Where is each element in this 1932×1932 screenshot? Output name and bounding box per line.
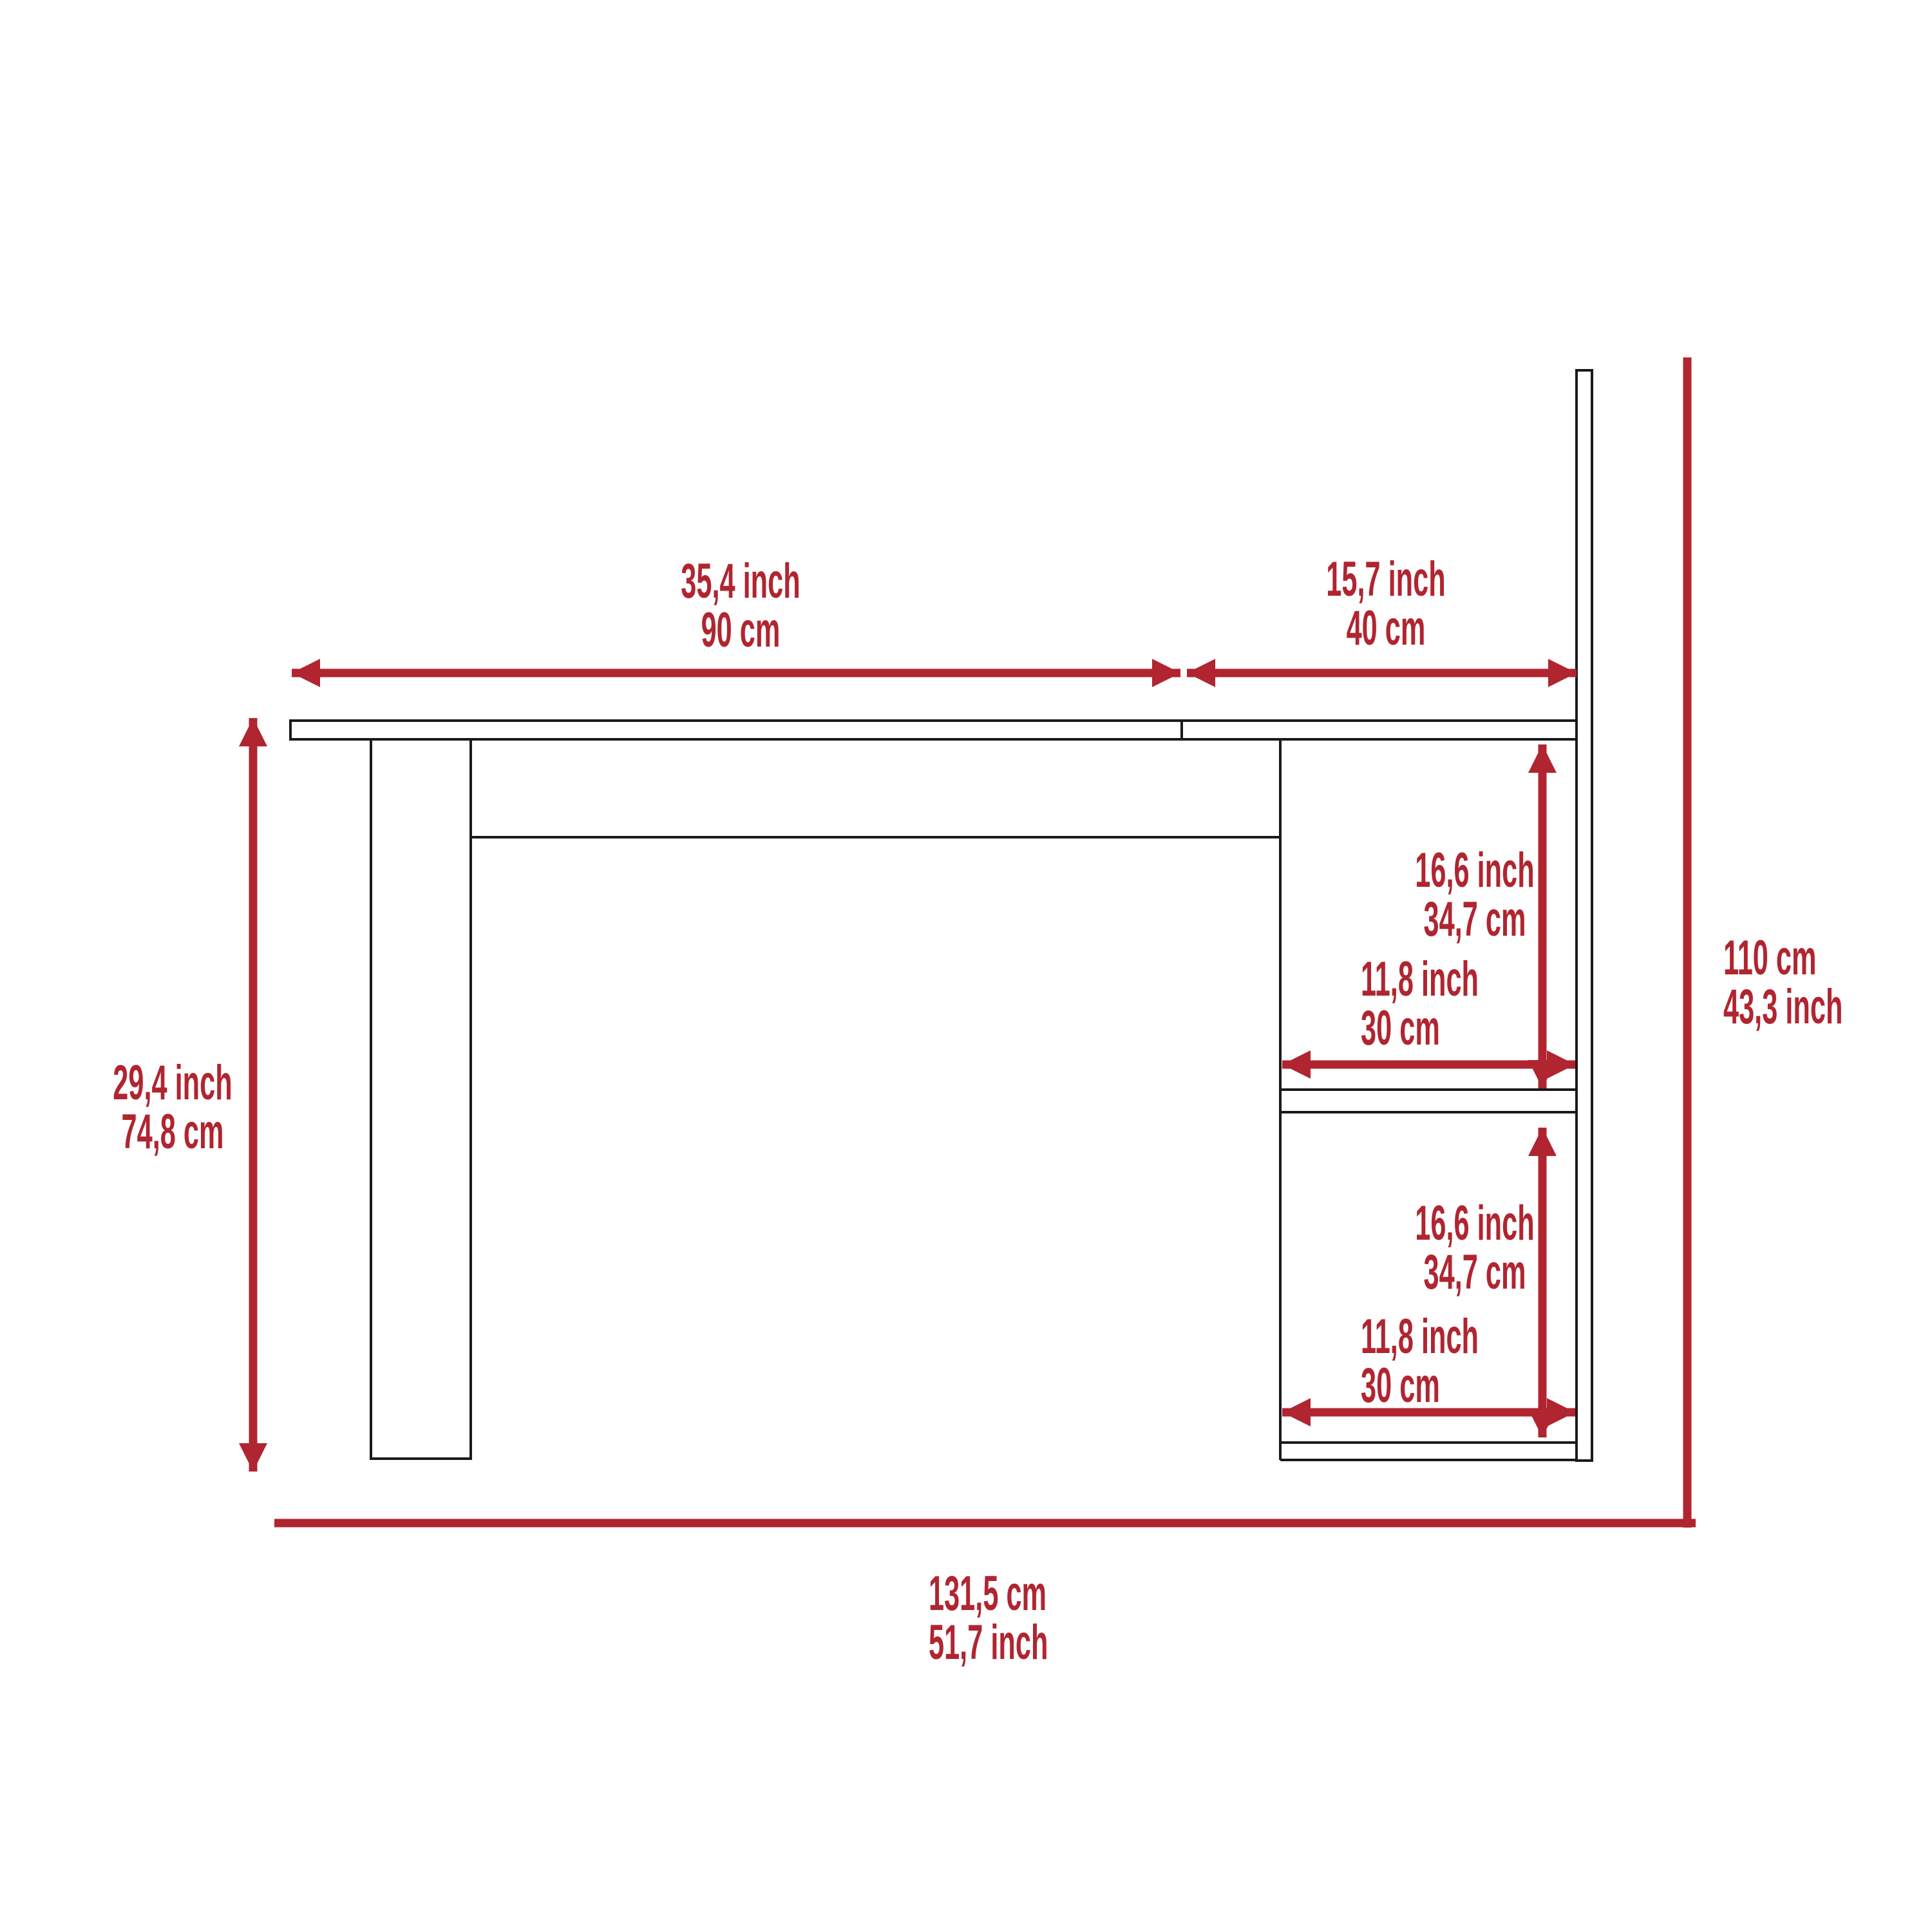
dim-label-total-height: 110 cm 43,3 inch <box>1723 934 1842 1032</box>
dim-label-lower-shelf-width: 11,8 inch 30 cm <box>1361 1312 1479 1410</box>
diagram-canvas: 35,4 inch 90 cm 15,7 inch 40 cm 29,4 inc… <box>0 0 1932 1932</box>
dim-label-total-width: 131,5 cm 51,7 inch <box>929 1569 1048 1667</box>
dim-label-line-inch: 11,8 inch <box>1361 1312 1479 1361</box>
dim-label-line-inch: 29,4 inch <box>62 1059 283 1108</box>
dim-label-line-inch: 11,8 inch <box>1361 955 1479 1004</box>
dim-label-line-inch: 35,4 inch <box>630 557 851 606</box>
desktop-surface <box>290 721 1577 739</box>
dim-label-line-inch: 43,3 inch <box>1723 983 1842 1032</box>
dim-label-desk-height: 29,4 inch 74,8 cm <box>62 1059 283 1157</box>
dim-label-line-cm: 30 cm <box>1361 1361 1479 1410</box>
dim-label-line-inch: 16,6 inch <box>1365 1199 1585 1248</box>
dim-label-line-cm: 131,5 cm <box>929 1569 1048 1618</box>
shelf-divider <box>1280 1090 1577 1112</box>
dim-label-line-cm: 110 cm <box>1723 934 1842 983</box>
dim-label-upper-shelf-width: 11,8 inch 30 cm <box>1361 955 1479 1053</box>
shelf-bottom-panel <box>1280 1443 1577 1460</box>
dim-label-line-inch: 51,7 inch <box>929 1618 1048 1667</box>
dim-label-line-inch: 15,7 inch <box>1276 555 1496 604</box>
dim-label-upper-shelf-height: 16,6 inch 34,7 cm <box>1365 846 1585 944</box>
dim-label-line-cm: 34,7 cm <box>1365 1248 1585 1297</box>
dim-label-line-inch: 16,6 inch <box>1365 846 1585 895</box>
dim-label-line-cm: 90 cm <box>630 606 851 655</box>
dim-label-desktop-return-width: 15,7 inch 40 cm <box>1276 555 1496 653</box>
dim-label-line-cm: 74,8 cm <box>62 1108 283 1157</box>
left-leg-panel <box>371 739 471 1459</box>
dim-label-line-cm: 34,7 cm <box>1365 895 1585 944</box>
dim-label-line-cm: 40 cm <box>1276 604 1496 653</box>
dim-label-desktop-main-width: 35,4 inch 90 cm <box>630 557 851 655</box>
dim-label-lower-shelf-height: 16,6 inch 34,7 cm <box>1365 1199 1585 1297</box>
dim-label-line-cm: 30 cm <box>1361 1004 1479 1053</box>
